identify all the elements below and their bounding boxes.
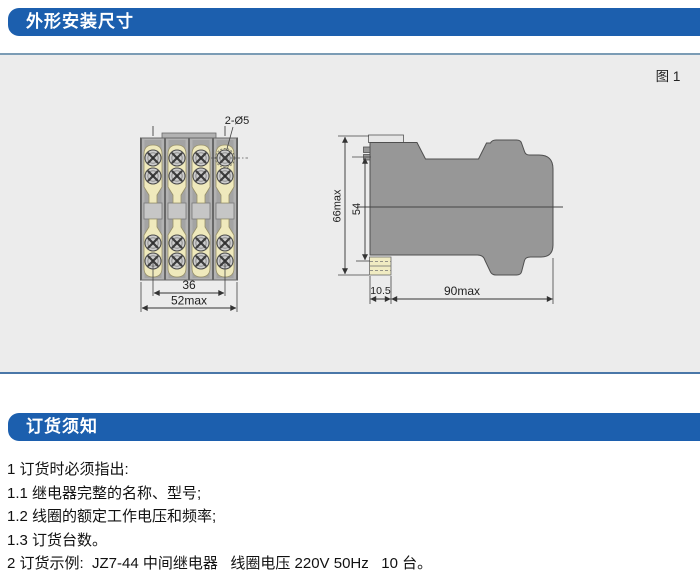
note-line-2: 1.1 继电器完整的名称、型号; <box>7 482 696 506</box>
section-title-dimensions: 外形安装尺寸 <box>26 12 134 31</box>
datasheet-page: { "page": { "section1_title": "外形安装尺寸", … <box>0 0 700 579</box>
section-header-ordering: 订货须知 <box>8 413 700 441</box>
dim-label-terminal-depth: 10.5 <box>370 285 391 297</box>
note-line-3: 1.2 线圈的额定工作电压和频率; <box>7 505 696 529</box>
dim-label-depth: 90max <box>444 284 480 298</box>
note-line-4: 1.3 订货台数。 <box>7 529 696 553</box>
section-header-dimensions: 外形安装尺寸 <box>8 8 700 36</box>
terminal-column <box>190 138 213 280</box>
figure-label: 图 1 <box>656 69 681 84</box>
side-view-drawing: 66max 54 10.5 90max <box>332 135 564 304</box>
front-view-drawing: 2-Ø5 36 52max <box>141 115 250 312</box>
terminal-column <box>142 138 165 280</box>
dimension-drawing: 图 1 2-Ø5 36 <box>0 55 700 372</box>
terminal-column <box>214 138 237 280</box>
note-line-1: 1 订货时必须指出: <box>7 458 696 482</box>
dim-label-inner-width: 36 <box>182 278 196 292</box>
terminal-column <box>166 138 189 280</box>
dim-label-height-inner: 54 <box>351 203 363 215</box>
dim-label-hole: 2-Ø5 <box>225 115 249 127</box>
dim-label-outer-width: 52max <box>171 294 207 308</box>
figure-panel: 图 1 2-Ø5 36 <box>0 53 700 374</box>
note-line-5: 2 订货示例: JZ7-44 中间继电器 线圈电压 220V 50Hz 10 台… <box>7 552 696 576</box>
relay-side-body <box>370 140 553 275</box>
ordering-notes: 1 订货时必须指出: 1.1 继电器完整的名称、型号; 1.2 线圈的额定工作电… <box>7 458 696 576</box>
section-title-ordering: 订货须知 <box>26 417 98 436</box>
dim-label-height-outer: 66max <box>332 189 344 223</box>
